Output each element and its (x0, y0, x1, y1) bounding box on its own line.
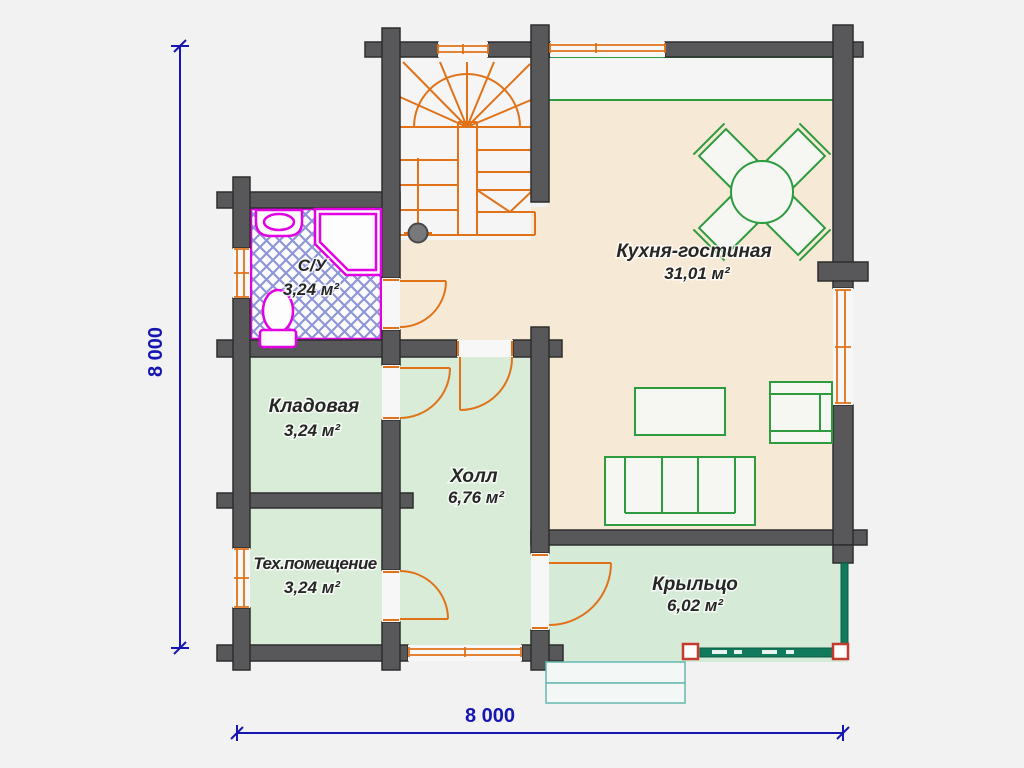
kitchen-area: 31,01 м² (664, 264, 731, 283)
wall-segment (382, 330, 400, 365)
porch-post (833, 644, 848, 659)
coffee-table (635, 388, 725, 435)
wall-log-joint (818, 262, 868, 281)
storage-area: 3,24 м² (284, 421, 341, 440)
dimension-bottom: 8 000 (231, 705, 849, 741)
sink-basin (264, 214, 294, 230)
dimension-left: 8 000 (145, 40, 189, 654)
wall-segment (833, 405, 853, 545)
porch-area: 6,02 м² (667, 596, 724, 615)
floor-plan-drawing: Кухня-гостиная 31,01 м² С/У 3,24 м² Клад… (0, 0, 1024, 768)
wall-segment (531, 25, 549, 202)
wall-segment (382, 622, 400, 670)
hall-label: Холл (449, 466, 497, 487)
dimension-bottom-value: 8 000 (465, 705, 515, 727)
floor-plan-canvas: Кухня-гостиная 31,01 м² С/У 3,24 м² Клад… (0, 0, 1024, 768)
tech-room-floor (250, 508, 382, 645)
sofa (605, 457, 755, 525)
wall-segment (382, 28, 400, 278)
toilet-tank (260, 330, 296, 347)
wall-segment (382, 420, 400, 570)
tech-room-area: 3,24 м² (284, 578, 341, 597)
door-gap (382, 365, 400, 420)
kitchen-label: Кухня-гостиная (616, 241, 771, 262)
wall-segment (531, 530, 867, 545)
door-gap (457, 340, 513, 357)
tech-room-label: Тех.помещение (253, 554, 376, 573)
porch-step (546, 683, 685, 703)
porch-label: Крыльцо (652, 574, 738, 595)
armchair (770, 382, 832, 443)
wall-segment (233, 177, 250, 248)
wall-segment (233, 608, 250, 670)
dimension-left-value: 8 000 (145, 327, 167, 377)
bathroom-area: 3,24 м² (283, 280, 340, 299)
door-gap (382, 278, 400, 330)
stair-newel-post (409, 224, 428, 243)
kitchen-counter (548, 57, 833, 100)
storage-label: Кладовая (269, 396, 359, 417)
wall-segment (531, 327, 549, 553)
wall-segment (365, 42, 438, 57)
door-gap (382, 570, 400, 622)
wall-segment (833, 545, 853, 563)
porch-post (683, 644, 698, 659)
wall-segment (233, 298, 250, 548)
porch-railing-right (841, 563, 848, 646)
wall-segment (217, 340, 457, 357)
hall-area: 6,76 м² (448, 488, 505, 507)
bathroom-label: С/У (298, 256, 328, 275)
door-gap (531, 553, 549, 630)
wall-segment (833, 25, 853, 288)
porch-step (546, 662, 685, 683)
dining-table (731, 161, 793, 223)
